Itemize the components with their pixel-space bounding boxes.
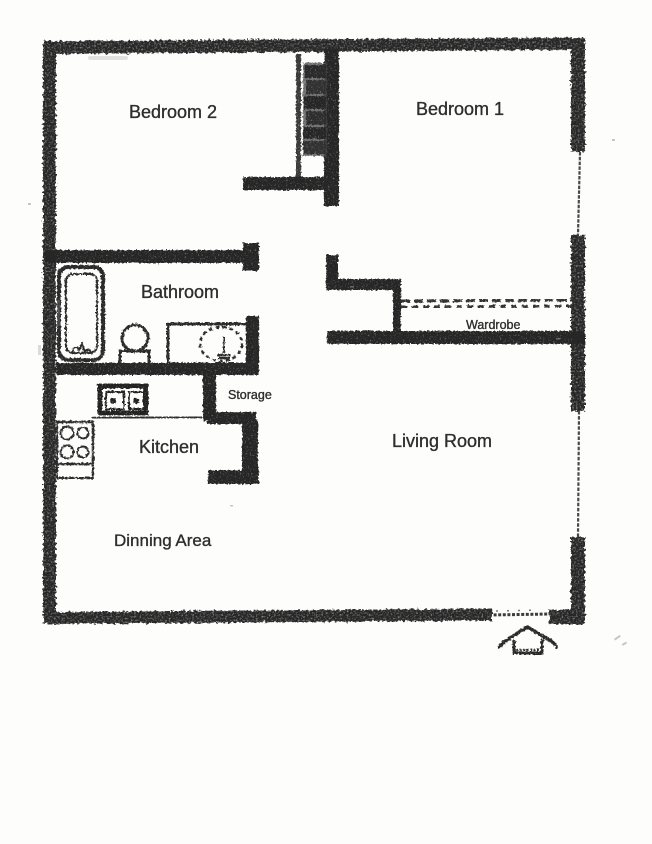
svg-text:Kitchen: Kitchen [139, 437, 199, 457]
svg-text:Bedroom 1: Bedroom 1 [416, 99, 504, 119]
svg-text:Storage: Storage [228, 388, 272, 402]
svg-text:Bedroom 2: Bedroom 2 [129, 102, 217, 122]
svg-text:Living Room: Living Room [392, 431, 492, 451]
svg-text:Bathroom: Bathroom [141, 282, 219, 302]
svg-text:Wardrobe: Wardrobe [466, 318, 520, 332]
svg-text:Dinning Area: Dinning Area [114, 531, 212, 550]
